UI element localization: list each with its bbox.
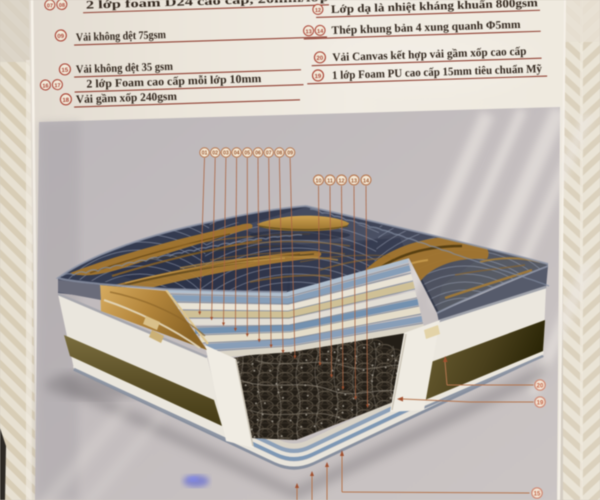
svg-text:20: 20 [316,56,324,62]
svg-text:13: 13 [306,29,312,35]
svg-text:20: 20 [537,384,544,390]
svg-text:07: 07 [47,3,53,9]
svg-text:05: 05 [244,151,250,157]
svg-text:04: 04 [234,151,240,157]
svg-text:12: 12 [315,8,321,14]
svg-text:19: 19 [537,401,544,407]
svg-text:12: 12 [339,178,345,184]
svg-text:13: 13 [351,178,357,184]
svg-text:15: 15 [61,68,69,74]
svg-text:09: 09 [287,151,293,157]
svg-text:03: 03 [223,151,229,157]
svg-text:15: 15 [534,492,541,498]
svg-text:02: 02 [212,151,218,157]
svg-text:08: 08 [59,3,65,9]
svg-text:19: 19 [314,74,322,80]
svg-text:16: 16 [42,83,48,89]
svg-text:09: 09 [57,34,65,40]
svg-text:14: 14 [363,178,369,184]
svg-text:08: 08 [277,151,283,157]
svg-text:07: 07 [266,151,272,157]
svg-text:11: 11 [327,178,333,184]
svg-text:06: 06 [255,151,261,157]
svg-text:17: 17 [54,83,60,89]
svg-text:01: 01 [202,151,208,157]
svg-text:10: 10 [316,178,322,184]
svg-text:18: 18 [62,98,70,104]
